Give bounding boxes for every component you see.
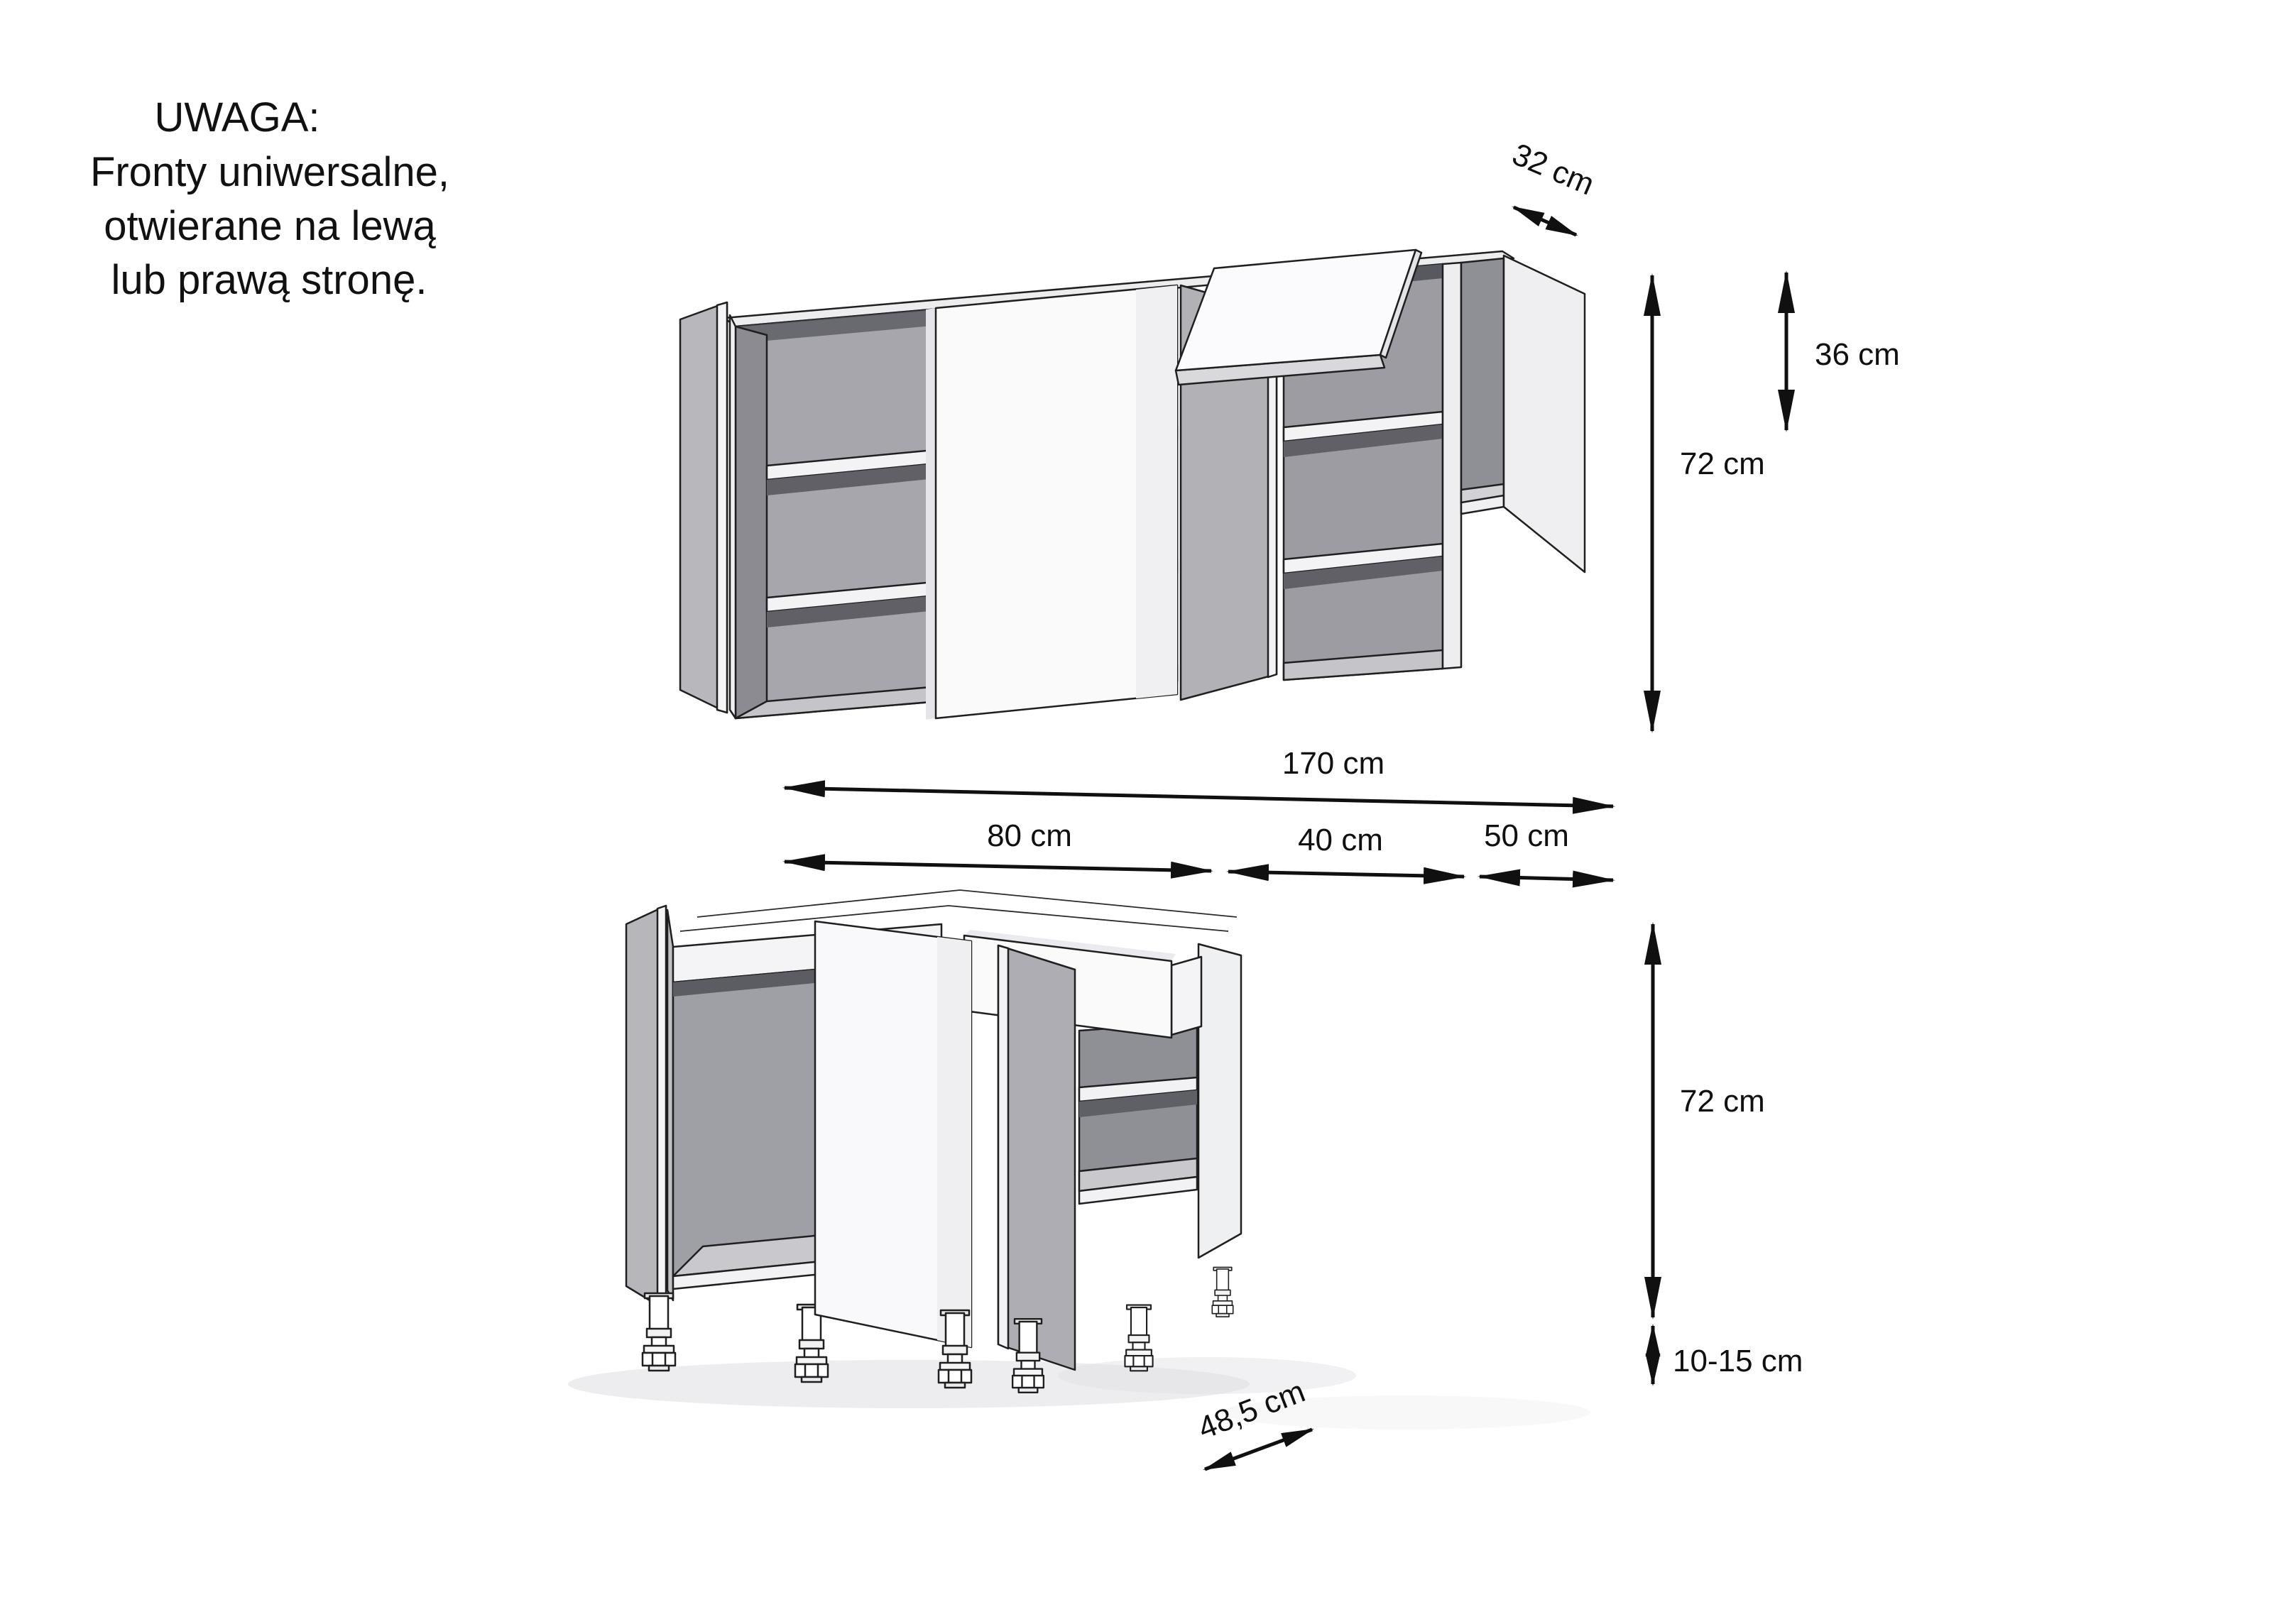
wall-cabinets-drawing xyxy=(680,250,1585,720)
note-line-1: UWAGA: xyxy=(154,94,319,141)
dimension-unit-widths: 80 cm 40 cm 50 cm xyxy=(785,818,1613,880)
note-line-4: lub prawą stronę. xyxy=(111,257,427,303)
wall-right-side-panel xyxy=(1504,256,1585,572)
label-wall-depth: 32 cm xyxy=(1507,137,1599,202)
foot-6 xyxy=(1212,1267,1233,1317)
note-block: UWAGA: Fronty uniwersalne, otwierane na … xyxy=(90,94,449,303)
dimension-total-width: 170 cm xyxy=(785,746,1613,806)
wall-divider-panel xyxy=(1443,263,1461,669)
note-line-2: Fronty uniwersalne, xyxy=(90,149,449,195)
base-door-white-front xyxy=(815,921,971,1347)
label-wall-height: 72 cm xyxy=(1680,446,1765,481)
base-right-side-panel xyxy=(1198,944,1241,1258)
foot-5 xyxy=(1125,1305,1152,1371)
label-unit1-width: 80 cm xyxy=(987,818,1072,853)
label-total-width: 170 cm xyxy=(1282,746,1384,781)
label-unit3-width: 50 cm xyxy=(1484,818,1569,853)
furniture-dimension-diagram: UWAGA: Fronty uniwersalne, otwierane na … xyxy=(0,0,2272,1624)
base-cabinets-drawing xyxy=(568,890,1590,1430)
label-unit2-width: 40 cm xyxy=(1298,823,1383,857)
note-line-3: otwierane na lewą xyxy=(104,203,436,249)
dimension-wall-depth: 32 cm xyxy=(1507,137,1599,235)
dimension-wall-height: 72 cm xyxy=(1652,275,1765,731)
base-door-open-left xyxy=(626,906,666,1310)
dimension-flip-height: 36 cm xyxy=(1786,273,1900,430)
dimension-base-height: 72 cm xyxy=(1653,924,1765,1317)
label-flip-height: 36 cm xyxy=(1815,337,1900,372)
label-base-height: 72 cm xyxy=(1680,1084,1765,1119)
floor-shadow xyxy=(568,1357,1590,1430)
label-legs-height: 10-15 cm xyxy=(1673,1344,1803,1378)
wall-door-white-front xyxy=(926,285,1177,720)
wall-door-open-left xyxy=(680,302,727,713)
base-door-open-middle xyxy=(998,945,1075,1370)
foot-1 xyxy=(643,1293,675,1371)
base-top-rails xyxy=(680,890,1237,931)
dimension-legs-height: 10-15 cm xyxy=(1653,1326,1803,1384)
